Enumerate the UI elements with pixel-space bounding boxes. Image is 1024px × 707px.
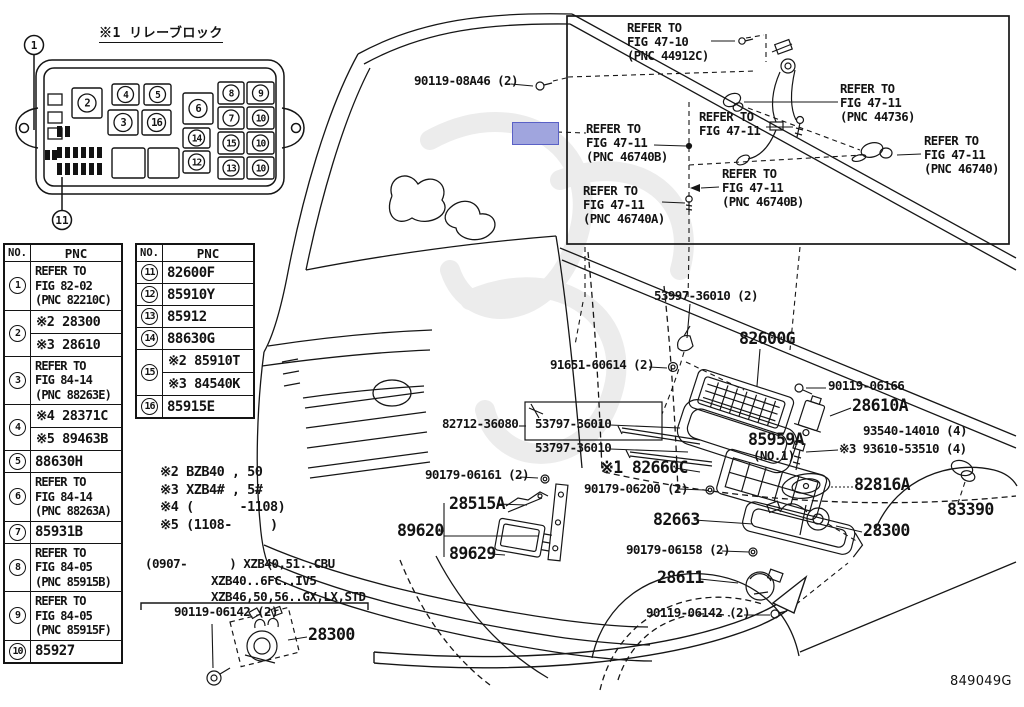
col-header-no: NO.	[137, 245, 163, 261]
part-label[interactable]: 28300	[308, 627, 355, 644]
table-row[interactable]: 785931B	[5, 521, 121, 543]
row-number-badge: 3	[9, 372, 26, 389]
pnc-value: FIG 84-05	[35, 560, 120, 575]
relay-slot-number: 10	[256, 139, 267, 150]
table-row[interactable]: 4※4 28371C※5 89463B	[5, 404, 121, 450]
part-label[interactable]: 93540-14010 (4)	[863, 425, 967, 438]
relay-callout-1: 1	[31, 39, 38, 52]
table-row[interactable]: 3REFER TOFIG 84-14(PNC 88263E)	[5, 356, 121, 405]
col-header-pnc: PNC	[31, 245, 121, 261]
table-row[interactable]: 1285910Y	[137, 283, 253, 305]
pnc-value: 85912	[167, 309, 252, 325]
part-label[interactable]: 89629	[449, 546, 496, 563]
row-number-badge: 15	[141, 364, 158, 381]
relay-slot-number: 16	[151, 117, 162, 129]
applicability-line: XZB46,50,56..GX,LX,STD	[211, 589, 366, 604]
pnc-value: (PNC 85915F)	[35, 623, 120, 638]
pnc-value: (PNC 82210C)	[35, 293, 120, 308]
row-number-badge: 2	[9, 325, 26, 342]
part-label[interactable]: (NO.1)	[753, 450, 795, 463]
pnc-value: 88630G	[167, 331, 252, 347]
relay-slot-number: 3	[120, 117, 126, 129]
part-label[interactable]: 90179-06200 (2)	[584, 483, 688, 496]
refer-to-label: REFER TOFIG 47-11(PNC 46740B)	[722, 168, 804, 209]
part-label[interactable]: 82663	[653, 512, 700, 529]
relay-slot-number: 13	[226, 164, 237, 175]
relay-slot-number: 7	[229, 114, 234, 125]
part-label[interactable]: 90179-06161 (2)	[425, 469, 529, 482]
relay-slot-number: 10	[256, 164, 267, 175]
pnc-value: FIG 84-14	[35, 373, 120, 388]
part-label[interactable]: 28300	[863, 523, 910, 540]
part-label[interactable]: 53797-36010	[535, 442, 611, 455]
refer-to-label: REFER TOFIG 47-11(PNC 44736)	[840, 83, 915, 124]
pnc-table-1: NO.PNC1REFER TOFIG 82-02(PNC 82210C)2※2 …	[3, 243, 123, 664]
pnc-value: FIG 84-05	[35, 609, 120, 624]
table-row[interactable]: 9REFER TOFIG 84-05(PNC 85915F)	[5, 591, 121, 640]
applicability-line: (0907- ) XZB40,51..CBU	[145, 556, 335, 571]
relay-callout-11: 11	[55, 214, 69, 227]
pnc-value: REFER TO	[35, 359, 120, 374]
row-number-badge: 7	[9, 524, 26, 541]
relay-slot-number: 9	[258, 89, 264, 100]
part-label[interactable]: 85959A	[748, 432, 804, 449]
pnc-value: REFER TO	[35, 546, 120, 561]
relay-slot-number: 15	[226, 139, 237, 150]
relay-slot-number: 6	[195, 103, 201, 115]
pnc-value[interactable]: ※2 85910T	[163, 350, 253, 372]
part-label[interactable]: 91651-60614 (2)	[550, 359, 654, 372]
row-number-badge: 4	[9, 419, 26, 436]
col-header-pnc: PNC	[163, 245, 253, 261]
row-number-badge: 12	[141, 286, 158, 303]
relay-slot-number: 2	[84, 98, 90, 110]
leader-arrowhead	[690, 184, 700, 192]
col-header-no: NO.	[5, 245, 31, 261]
pnc-value: (PNC 85915B)	[35, 575, 120, 590]
pnc-value: (PNC 88263A)	[35, 504, 120, 519]
pnc-value[interactable]: ※4 28371C	[31, 405, 121, 427]
pnc-value: REFER TO	[35, 264, 120, 279]
row-number-badge: 11	[141, 264, 158, 281]
variant-note-line: ※4 ( -1108)	[160, 499, 285, 515]
part-label[interactable]: 90119-06142 (2)	[646, 607, 750, 620]
part-label[interactable]: 53997-36010 (2)	[654, 290, 758, 303]
table-row[interactable]: 1685915E	[137, 395, 253, 417]
pnc-value[interactable]: ※5 89463B	[31, 427, 121, 450]
pnc-value: 85927	[35, 643, 120, 659]
relay-slot-number: 8	[229, 89, 235, 100]
watermark	[430, 122, 684, 454]
part-label[interactable]: ※3 93610-53510 (4)	[839, 443, 967, 456]
pnc-value[interactable]: ※3 28610	[31, 333, 121, 356]
variant-note-line: ※2 BZB40 , 50	[160, 464, 262, 480]
pnc-value: (PNC 88263E)	[35, 388, 120, 403]
pnc-value: FIG 82-02	[35, 279, 120, 294]
relay-block-title: ※1 リレーブロック	[99, 22, 223, 43]
table-row[interactable]: 2※2 28300※3 28610	[5, 310, 121, 356]
pnc-value: 85931B	[35, 524, 120, 540]
relay-slot-number: 14	[192, 134, 203, 145]
relay-slot-number: 10	[256, 114, 267, 125]
pnc-value: 85915E	[167, 399, 252, 415]
pnc-value[interactable]: ※3 84540K	[163, 372, 253, 395]
applicability-line: XZB40..6FC..IV5	[211, 573, 316, 588]
table-row[interactable]: 1REFER TOFIG 82-02(PNC 82210C)	[5, 261, 121, 310]
relay-slot-number: 12	[192, 158, 202, 169]
table-row[interactable]: 6REFER TOFIG 84-14(PNC 88263A)	[5, 472, 121, 521]
part-label[interactable]: 90119-08A46 (2)	[414, 75, 518, 88]
part-label[interactable]: 83390	[947, 502, 994, 519]
relay-slot-number: 5	[155, 90, 161, 101]
table-row[interactable]: 15※2 85910T※3 84540K	[137, 349, 253, 395]
refer-to-label: REFER TOFIG 47-11(PNC 46740)	[924, 135, 999, 176]
pnc-table-2: NO.PNC1182600F1285910Y13859121488630G15※…	[135, 243, 255, 419]
variant-note-line: ※5 (1108- )	[160, 517, 278, 533]
relay-fuse-marks	[45, 94, 102, 175]
part-label[interactable]: 28610A	[852, 398, 908, 415]
refer-to-label: REFER TOFIG 47-11(PNC 46740A)	[583, 185, 665, 226]
relay-slots: 245316689710141510121310	[72, 82, 274, 179]
row-number-badge: 16	[141, 398, 158, 415]
table-row[interactable]: 1488630G	[137, 327, 253, 349]
row-number-badge: 14	[141, 330, 158, 347]
row-number-badge: 10	[9, 643, 26, 660]
part-label[interactable]: 89620	[397, 523, 444, 540]
pnc-value: REFER TO	[35, 594, 120, 609]
row-number-badge: 1	[9, 277, 26, 294]
part-label[interactable]: 82600G	[739, 331, 795, 348]
row-number-badge: 13	[141, 308, 158, 325]
pnc-value: 88630H	[35, 454, 120, 470]
table-row[interactable]: 1385912	[137, 305, 253, 327]
table-row[interactable]: 588630H	[5, 450, 121, 472]
part-label[interactable]: ※1 82660C	[600, 460, 688, 477]
row-number-badge: 6	[9, 488, 26, 505]
part-label[interactable]: 53797-36010	[535, 418, 611, 431]
pnc-value: 85910Y	[167, 287, 252, 303]
pnc-value[interactable]: ※2 28300	[31, 311, 121, 333]
part-label[interactable]: 90179-06158 (2)	[626, 544, 730, 557]
relay-slot-number: 4	[123, 90, 129, 101]
parts-diagram-canvas: 1 11 245316689710141510121310	[0, 0, 1024, 707]
pnc-value: 82600F	[167, 265, 252, 281]
direction-arrow	[374, 577, 806, 668]
table-row[interactable]: 8REFER TOFIG 84-05(PNC 85915B)	[5, 543, 121, 592]
part-label[interactable]: 28515A	[449, 496, 505, 513]
refer-to-label: REFER TOFIG 47-10(PNC 44912C)	[627, 22, 709, 63]
row-number-badge: 5	[9, 453, 26, 470]
table-row[interactable]: 1085927	[5, 640, 121, 662]
pnc-value: FIG 84-14	[35, 490, 120, 505]
refer-to-label: REFER TOFIG 47-11(PNC 46740B)	[586, 123, 668, 164]
part-label[interactable]: 82816A	[854, 477, 910, 494]
part-label[interactable]: 90119-06166	[828, 380, 904, 393]
variant-note-line: ※3 XZB4# , 5#	[160, 482, 262, 498]
table-row[interactable]: 1182600F	[137, 261, 253, 283]
row-number-badge: 9	[9, 607, 26, 624]
highlighted-part-region[interactable]	[512, 122, 559, 145]
refer-to-label: REFER TOFIG 47-11	[699, 111, 760, 139]
row-number-badge: 8	[9, 559, 26, 576]
part-label[interactable]: 90119-06142 (2)	[174, 606, 278, 619]
part-label[interactable]: 28611	[657, 570, 704, 587]
doc-number: 849049G	[950, 675, 1012, 688]
pnc-value: REFER TO	[35, 475, 120, 490]
part-label[interactable]: 82712-36080	[442, 418, 518, 431]
